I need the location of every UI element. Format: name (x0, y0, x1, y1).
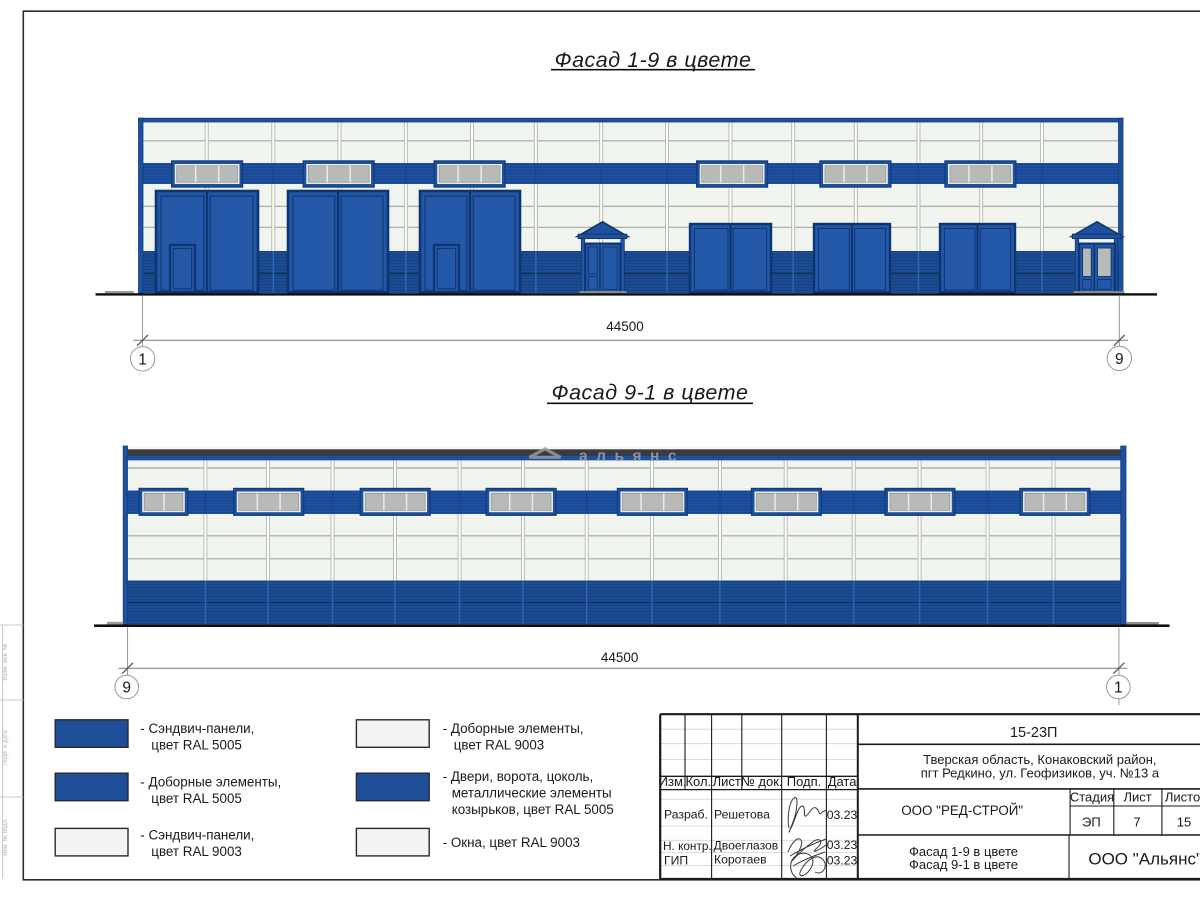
svg-text:цвет RAL 5005: цвет RAL 5005 (151, 791, 242, 806)
svg-text:03.23: 03.23 (827, 854, 858, 868)
svg-text:03.23: 03.23 (827, 808, 858, 822)
svg-text:Решетова: Решетова (714, 808, 770, 822)
svg-text:ООО "РЕД-СТРОЙ": ООО "РЕД-СТРОЙ" (901, 803, 1023, 818)
svg-text:Стадия: Стадия (1070, 790, 1114, 805)
svg-text:металлические элементы: металлические элементы (452, 785, 612, 800)
svg-text:Подп.: Подп. (787, 774, 822, 789)
svg-text:альянс: альянс (579, 448, 685, 465)
svg-text:Кол.: Кол. (685, 774, 711, 789)
svg-text:цвет RAL 9003: цвет RAL 9003 (151, 844, 242, 859)
svg-text:44500: 44500 (606, 319, 644, 334)
svg-text:козырьков, цвет RAL 5005: козырьков, цвет RAL 5005 (452, 802, 614, 817)
svg-text:Фасад 1-9 в цвете: Фасад 1-9 в цвете (555, 48, 752, 72)
svg-text:Подп. и дата: Подп. и дата (3, 730, 9, 766)
svg-text:№ док.: № док. (741, 774, 783, 789)
svg-text:- Сэндвич-панели,: - Сэндвич-панели, (140, 828, 254, 843)
svg-text:- Доборные элементы,: - Доборные элементы, (140, 774, 281, 789)
svg-text:Изм.: Изм. (659, 774, 687, 789)
svg-text:Дата: Дата (828, 774, 858, 789)
svg-text:Лист: Лист (1123, 790, 1151, 805)
svg-text:Фасад 9-1 в цвете: Фасад 9-1 в цвете (552, 381, 749, 405)
svg-text:9: 9 (1115, 351, 1124, 368)
svg-text:7: 7 (1133, 815, 1140, 830)
svg-text:Инв. № подл.: Инв. № подл. (2, 818, 9, 856)
svg-text:цвет RAL 9003: цвет RAL 9003 (454, 737, 545, 752)
svg-text:пгт Редкино, ул. Геофизиков, у: пгт Редкино, ул. Геофизиков, уч. №13 а (921, 766, 1160, 781)
svg-text:Разраб.: Разраб. (664, 808, 708, 822)
svg-text:15: 15 (1177, 815, 1191, 830)
svg-text:Н. контр.: Н. контр. (663, 839, 712, 853)
svg-text:Взам. инв. №: Взам. инв. № (2, 643, 9, 680)
svg-text:9: 9 (122, 680, 131, 697)
svg-text:1: 1 (1114, 680, 1123, 697)
svg-text:44500: 44500 (601, 650, 639, 665)
svg-text:Фасад 9-1 в цвете: Фасад 9-1 в цвете (909, 857, 1018, 872)
svg-text:- Доборные элементы,: - Доборные элементы, (443, 721, 584, 736)
svg-text:ООО "Альянс": ООО "Альянс" (1088, 850, 1200, 869)
svg-text:03.23: 03.23 (827, 838, 858, 852)
svg-text:Двоеглазов: Двоеглазов (714, 839, 779, 853)
svg-text:ГИП: ГИП (664, 854, 688, 868)
svg-text:Коротаев: Коротаев (714, 852, 767, 866)
svg-text:- Окна, цвет RAL 9003: - Окна, цвет RAL 9003 (443, 835, 580, 850)
svg-text:Лист: Лист (713, 774, 741, 789)
svg-text:цвет RAL 5005: цвет RAL 5005 (151, 737, 242, 752)
svg-text:- Двери, ворота, цоколь,: - Двери, ворота, цоколь, (443, 769, 594, 784)
svg-text:1: 1 (138, 351, 147, 368)
svg-text:Листов: Листов (1165, 790, 1200, 805)
svg-text:- Сэндвич-панели,: - Сэндвич-панели, (140, 721, 254, 736)
svg-text:15-23П: 15-23П (1010, 725, 1058, 741)
svg-text:ЭП: ЭП (1082, 815, 1101, 830)
